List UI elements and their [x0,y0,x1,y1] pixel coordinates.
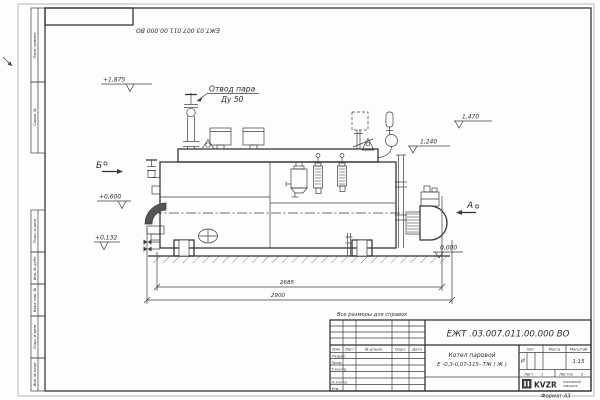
lever-safety-valve [352,112,374,150]
front-valve [146,160,160,178]
sig-razrab: Разраб. [332,354,347,358]
burner [145,203,166,240]
frame-label-inv-dubl: Инв. № дубл. [33,256,37,281]
dim-2900-value: 2900 [271,293,286,299]
frame-label-sprav-no: Справ. № [33,108,37,126]
front-stub [152,186,160,194]
view-b-label: Б [96,161,102,171]
steam-outlet-pipe [183,93,199,149]
drain-valves [144,240,161,252]
valve-bonnet-left [210,128,231,149]
elevation-0132: +0,132 [94,235,120,250]
sig-nkontr: Н.контр. [332,380,349,384]
sig-prov: Пров. [332,361,343,365]
header-data: Дата [411,348,422,352]
kvzr-logo: KVZR КОТЕЛЬНЫЙ ЗАВОД РФ [522,379,581,390]
mass-label: Масса [549,348,561,352]
view-b-arrow: Б [96,161,123,174]
elevation-1875-label: +1,875 [103,77,125,84]
sheets-value: 2 [581,372,584,376]
level-indicators [286,154,347,198]
drum-fittings [202,128,264,149]
drawing-sheet: Перв. примен. Справ. № Подп. и дата Инв.… [0,0,600,400]
sheet-value: 1 [541,372,543,376]
top-stamp-doc-number: ЕЖТ.03.007.011.00.000 ВО [136,26,220,33]
manhole [199,229,218,243]
gauge-glass-1 [314,154,323,194]
elevation-1470-label: 1,470 [462,114,479,121]
sheets-label: Листов [558,372,573,376]
view-a-arrow: А [456,201,479,215]
header-izm: Изм. [332,348,341,352]
view-arrows: Б А [3,57,479,215]
dimension-2685: 2685 [154,196,445,291]
pump-motor [420,206,447,240]
title-product-line2: Е -0,3-0,07-115- ТЖ ( Ж ) [437,362,507,368]
lifting-eye [202,140,214,150]
corner-leader-arrow [3,57,12,66]
frame-label-vzam-inv: Взам. инв. № [33,288,37,313]
boiler-general-view-drawing: Перв. примен. Справ. № Подп. и дата Инв.… [0,0,600,400]
elevation-1470: 1,470 [454,114,492,129]
steam-outlet-callout: Отвод пара Ду 50 [197,85,259,104]
lit-label: Лит. [526,348,536,352]
elevation-1240-label: 1,240 [420,139,437,146]
frame-label-podp-data-1: Подп. и дата [33,219,37,243]
water-column [286,162,307,197]
header-podp: Подп. [395,348,406,352]
steam-callout-line1: Отвод пара [209,85,256,94]
steam-callout-line2: Ду 50 [220,95,244,104]
kvzr-logo-sub2: ЗАВОД РФ [563,384,578,388]
elevation-0600-label: +0,600 [99,194,121,201]
dim-2685-value: 2685 [280,280,295,286]
frame-left-columns: Перв. примен. Справ. № Подп. и дата Инв.… [31,8,45,391]
elevation-1875: +1,875 [101,77,152,92]
phantom-outline [352,112,368,130]
sheet-frame: Перв. примен. Справ. № Подп. и дата Инв.… [18,4,594,400]
ground-line [148,256,450,263]
sheet-label: Лист [523,372,534,376]
top-stamp: ЕЖТ.03.007.011.00.000 ВО [45,8,220,33]
view-a-label: А [466,201,473,211]
elevation-0132-label: +0,132 [95,235,117,242]
title-block: ЕЖТ .03.007.011.00.000 ВО Котел паровой … [330,320,591,391]
gooseneck-valve [379,112,398,158]
elevation-1240: 1,240 [408,139,450,154]
reference-note: Все размеры для справок [337,312,408,318]
header-list: Лист [344,348,355,352]
frame-label-podp-data-2: Подп. и дата [33,325,37,349]
frame-label-perv-primen: Перв. примен. [33,32,37,59]
gauge-glass-2 [338,154,347,192]
header-doc: № докум. [364,348,383,352]
elevation-0000-label: 0,000 [440,245,457,252]
scale-value: 1:15 [572,359,585,365]
title-product-line1: Котел паровой [448,352,495,359]
kvzr-logo-text: KVZR [534,381,557,390]
frame-label-inv-podl: Инв. № подл. [33,362,37,387]
format-label: Формат А3 [541,394,571,400]
elevation-0600: +0,600 [97,194,131,209]
title-doc-number: ЕЖТ .03.007.011.00.000 ВО [447,330,570,340]
boiler-body [152,149,404,256]
pump-top-valve [421,186,439,206]
valve-bonnet-right [243,128,264,149]
sig-tkontr: Т.контр. [332,367,348,371]
scale-label: Масштаб [570,348,588,352]
lit-value: И [521,359,525,365]
sig-utv: Утв. [332,387,340,391]
pump-flange-stack [406,212,420,234]
